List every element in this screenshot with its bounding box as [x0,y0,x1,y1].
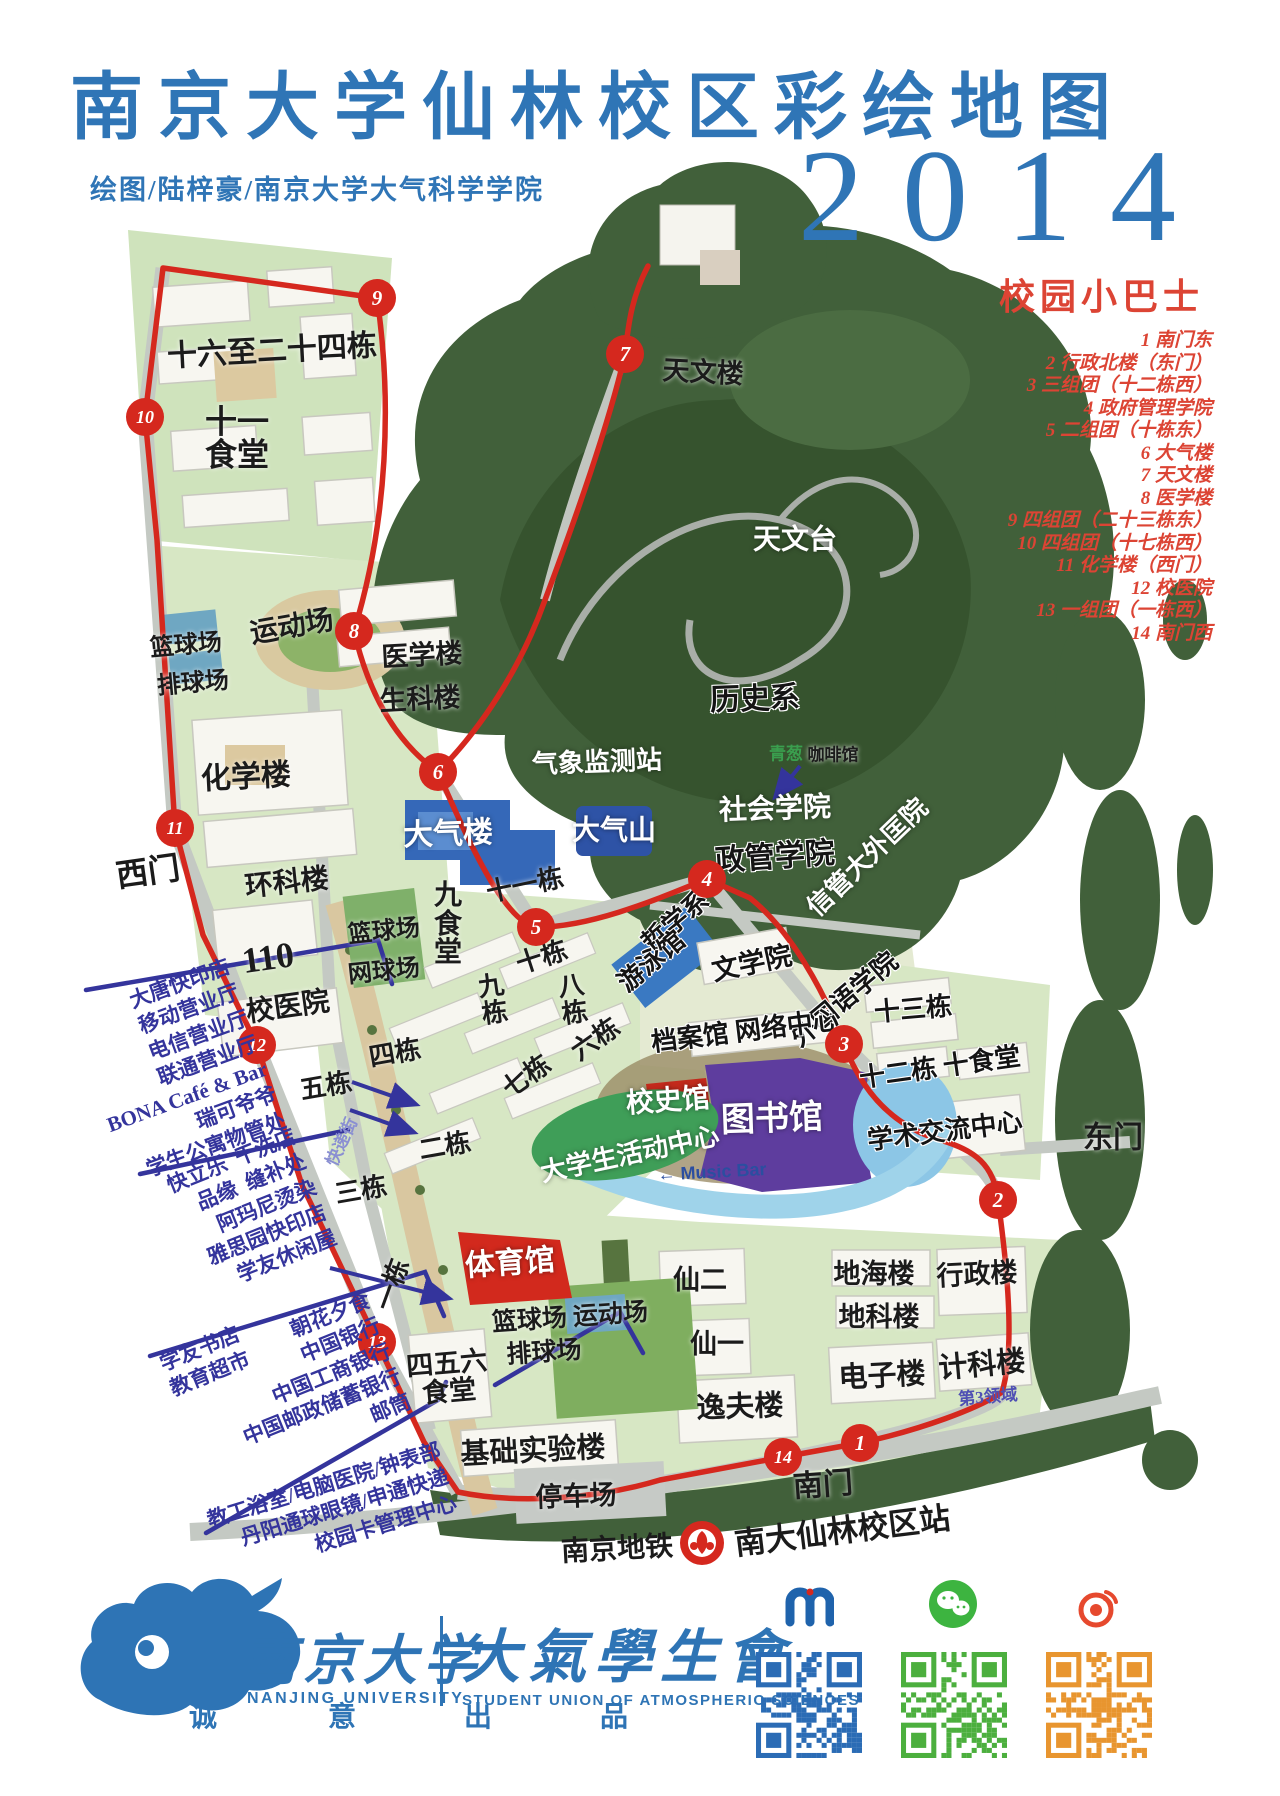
campus-map-poster: 南京大学仙林校区彩绘地图 绘图/陆梓豪/南京大学大气科学学院 2014 校园小巴… [0,0,1280,1796]
bus-stop-list: 1 南门东2 行政北楼（东门）3 三组团（十二栋西）4 政府管理学院5 二组团（… [1008,330,1212,645]
wechat-icon [927,1578,979,1630]
weibo-icon [1072,1580,1124,1632]
bus-stop-entry: 11 化学楼（西门） [1008,555,1212,578]
motto-char: 诚 [189,1695,217,1735]
motto-char: 意 [328,1695,356,1735]
qr-code-wechat [901,1652,1007,1758]
union-logotype-cn: 大氣學生會 [462,1610,792,1694]
bus-stop-entry: 14 南门西 [1008,623,1212,646]
bus-stop-entry: 6 大气楼 [1008,443,1212,466]
bus-stop-entry: 7 天文楼 [1008,465,1212,488]
bus-stop-entry: 12 校医院 [1008,578,1212,601]
qr-code-renren [756,1652,862,1758]
motto-char: 出 [464,1695,492,1735]
year-label: 2014 [798,130,1214,262]
bus-stop-entry: 3 三组团（十二栋西） [1008,375,1212,398]
nju-logotype-cn: 南京大学 [243,1616,483,1695]
qr-code-weibo [1046,1652,1152,1758]
bus-stop-entry: 4 政府管理学院 [1008,398,1212,421]
bus-stop-entry: 9 四组团（二十三栋东） [1008,510,1212,533]
bus-stop-entry: 2 行政北楼（东门） [1008,353,1212,376]
bus-stop-entry: 1 南门东 [1008,330,1212,353]
bus-stop-entry: 5 二组团（十栋东） [1008,420,1212,443]
bus-stop-entry: 10 四组团（十七栋西） [1008,533,1212,556]
bus-stop-entry: 8 医学楼 [1008,488,1212,511]
metro-prefix-label: 南京地铁 [560,1524,674,1570]
motto-char: 品 [600,1695,628,1735]
bus-stop-entry: 13 一组团（一栋西） [1008,600,1212,623]
renren-icon [782,1578,834,1630]
credit-line: 绘图/陆梓豪/南京大学大气科学学院 [90,168,544,207]
bus-schedule-title: 校园小巴士 [999,268,1204,320]
footer-divider [440,1616,443,1706]
metro-station-label: 南大仙林校区站 [732,1492,953,1563]
